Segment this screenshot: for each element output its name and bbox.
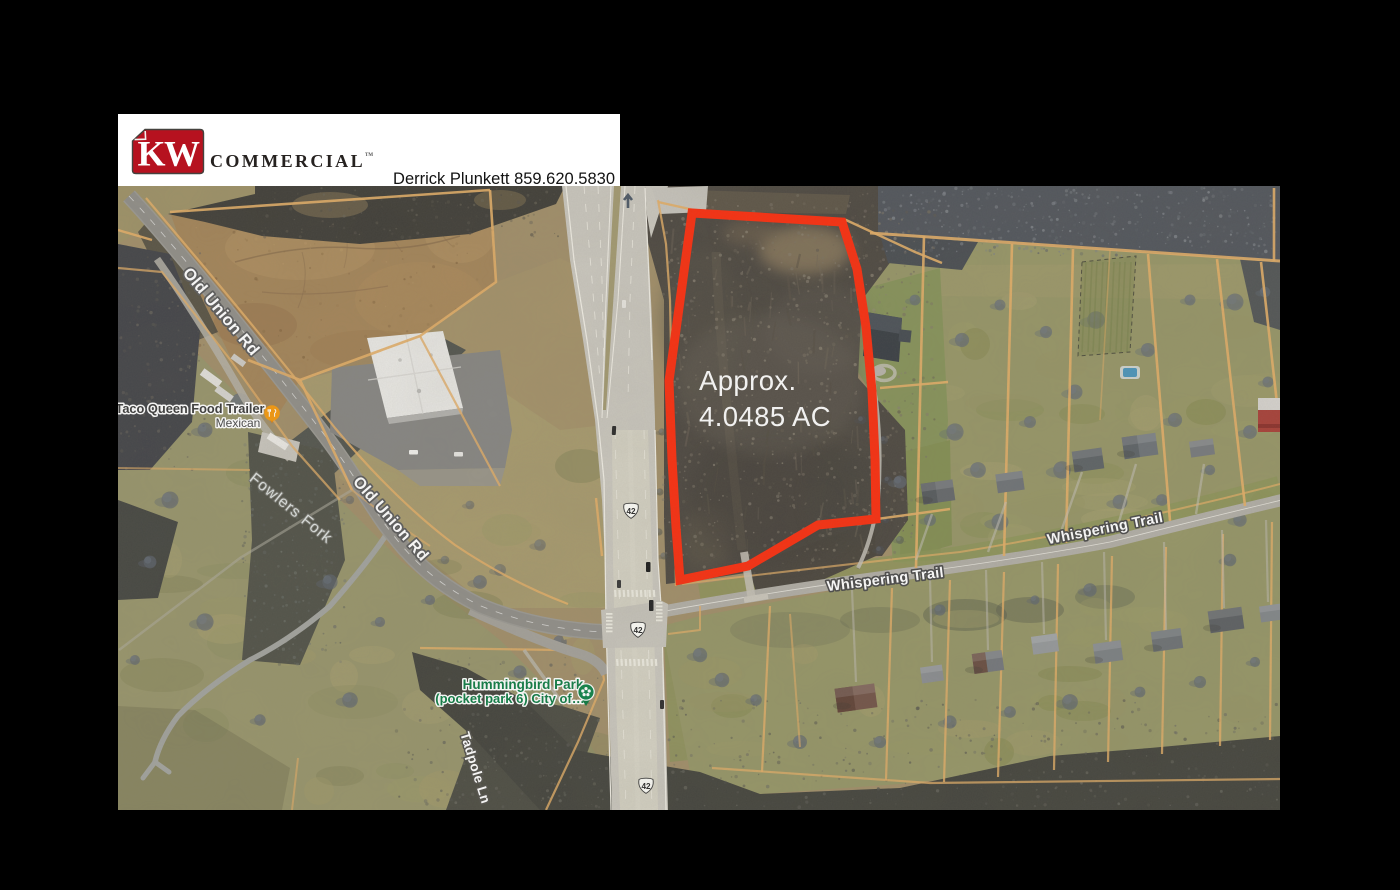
svg-text:KW: KW — [137, 134, 200, 174]
